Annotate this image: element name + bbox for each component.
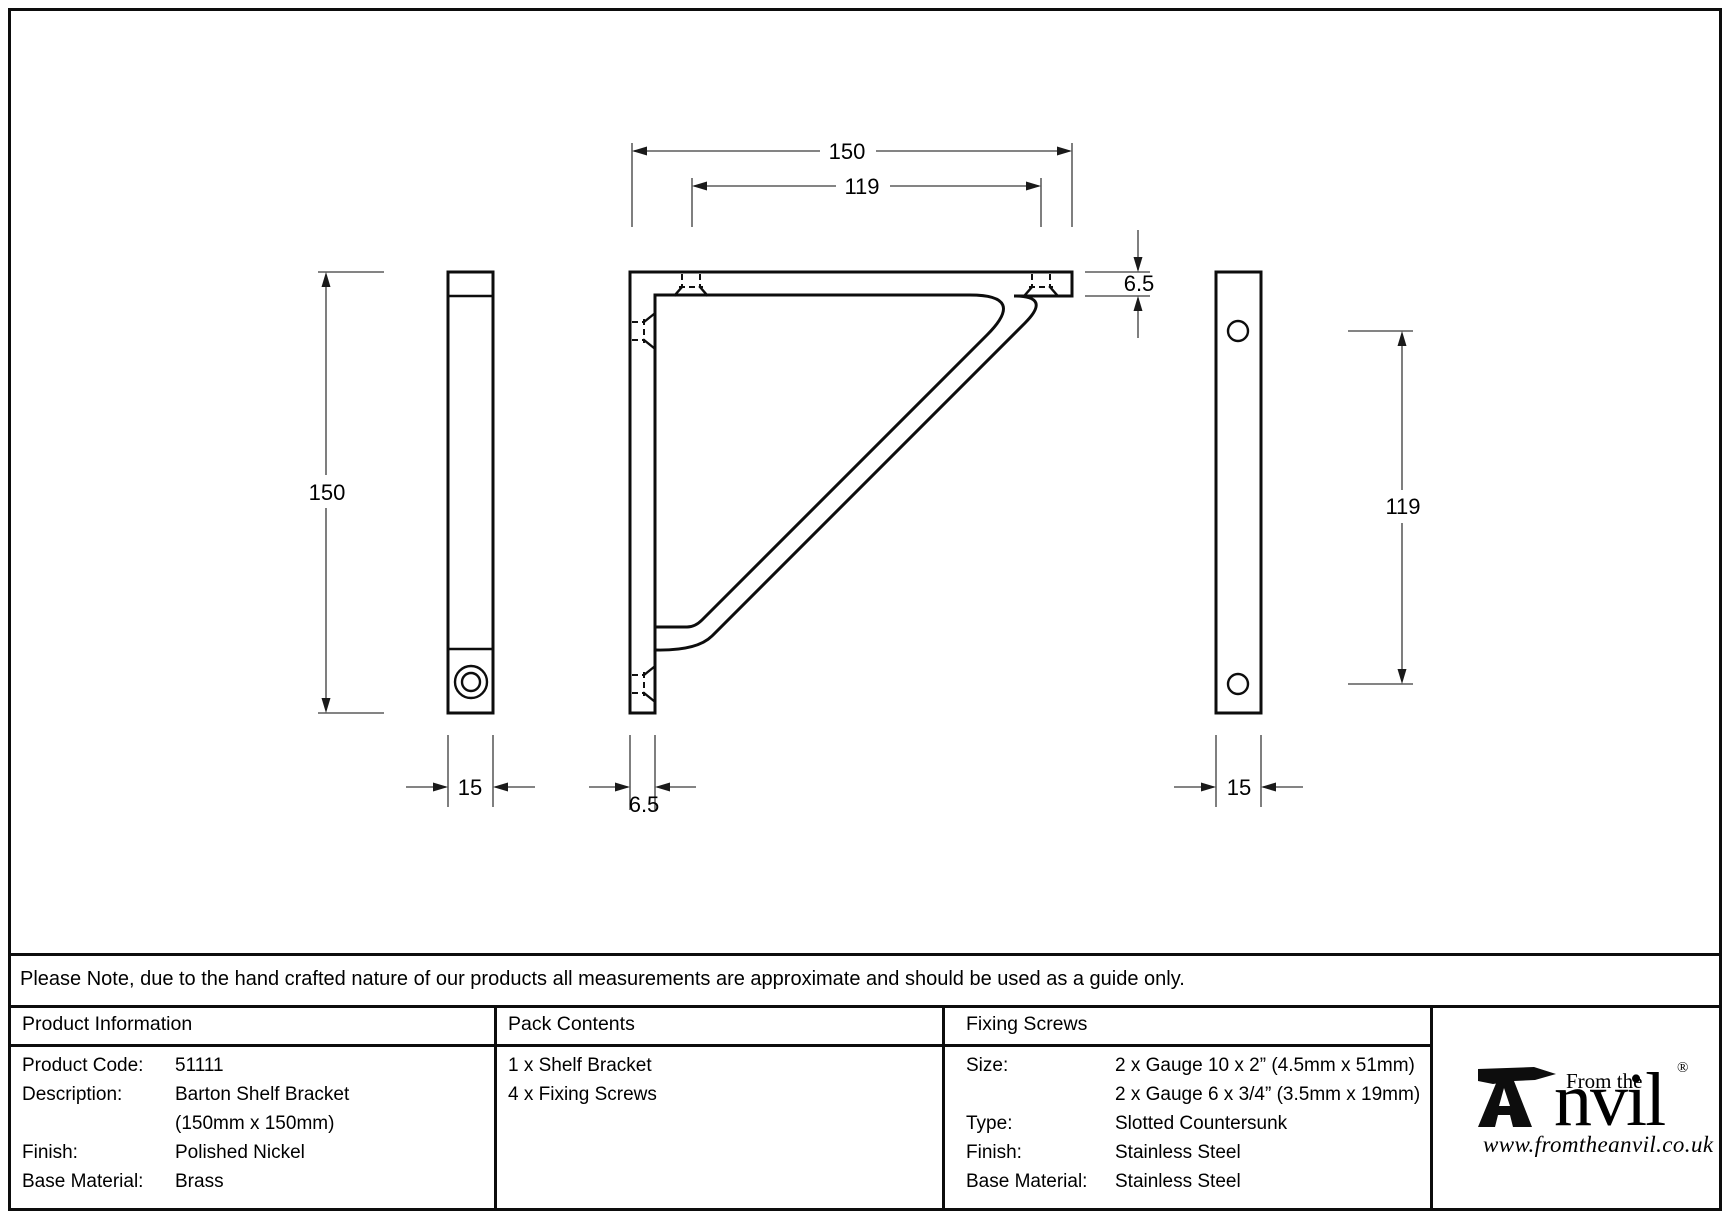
dim-right-width-label: 15 (1227, 775, 1251, 800)
row-label: Type: (966, 1109, 1115, 1138)
spec-sheet-page: 150 15 (0, 0, 1730, 1219)
countersunk-hole-inner (462, 673, 480, 691)
dim-front-hole-spacing: 119 (692, 174, 1041, 227)
product-information-header: Product Information (22, 1013, 192, 1036)
dim-front-arm-thickness: 6.5 (589, 735, 696, 817)
anvil-icon (1478, 1065, 1556, 1129)
dim-left-height: 150 (309, 272, 384, 713)
front-view: 150 119 6.5 (589, 139, 1154, 817)
dim-right-hole-spacing: 119 (1348, 331, 1421, 684)
list-item: 4 x Fixing Screws (508, 1080, 928, 1109)
table-row: Description: Barton Shelf Bracket (22, 1080, 482, 1109)
table-row: (150mm x 150mm) (22, 1109, 482, 1138)
left-side-view: 150 15 (309, 272, 535, 807)
fixing-screws-header: Fixing Screws (966, 1013, 1087, 1036)
row-label: Finish: (22, 1138, 175, 1167)
row-label: Base Material: (966, 1167, 1115, 1196)
left-side-view-outline (448, 272, 493, 713)
dim-front-thickness: 6.5 (1085, 230, 1154, 338)
row-value: Slotted Countersunk (1115, 1109, 1287, 1138)
row-label: Finish: (966, 1138, 1115, 1167)
front-hole-side-upper (632, 314, 654, 348)
row-value: 2 x Gauge 10 x 2” (4.5mm x 51mm) (1115, 1051, 1415, 1080)
divider-col-1 (494, 1005, 497, 1211)
dim-left-width: 15 (406, 735, 535, 807)
row-label: Description: (22, 1080, 175, 1109)
row-value: 51111 (175, 1051, 224, 1080)
table-row: Base Material: Brass (22, 1167, 482, 1196)
row-value: Polished Nickel (175, 1138, 305, 1167)
row-value: Brass (175, 1167, 224, 1196)
divider-col-2 (942, 1005, 945, 1211)
right-side-view: 119 15 (1174, 272, 1421, 807)
screw-hole-top (1228, 321, 1248, 341)
dim-left-width-label: 15 (458, 775, 482, 800)
dim-right-hole-spacing-label: 119 (1385, 494, 1420, 519)
row-value: (150mm x 150mm) (175, 1109, 334, 1138)
measurement-note: Please Note, due to the hand crafted nat… (20, 953, 1710, 1005)
logo-url: www.fromtheanvil.co.uk (1483, 1132, 1713, 1158)
row-value: Stainless Steel (1115, 1138, 1241, 1167)
dim-front-thickness-label: 6.5 (1124, 271, 1155, 296)
dim-front-arm-thickness-label: 6.5 (629, 792, 660, 817)
table-row: Product Code: 51111 (22, 1051, 482, 1080)
table-row: Finish: Polished Nickel (22, 1138, 482, 1167)
dim-right-width: 15 (1174, 735, 1303, 807)
list-item: 1 x Shelf Bracket (508, 1051, 928, 1080)
right-side-view-outline (1216, 272, 1261, 713)
front-hole-side-lower (632, 667, 654, 701)
dim-left-height-label: 150 (309, 480, 346, 505)
table-row: Base Material: Stainless Steel (966, 1167, 1426, 1196)
logo-wordmark: nvil (1554, 1062, 1664, 1138)
countersunk-hole-outer (455, 666, 487, 698)
table-row: Finish: Stainless Steel (966, 1138, 1426, 1167)
header-underline (8, 1044, 1430, 1047)
registered-mark-icon: ® (1677, 1060, 1688, 1077)
product-information-cell: Product Code: 51111 Description: Barton … (22, 1051, 482, 1196)
table-row: Type: Slotted Countersunk (966, 1109, 1426, 1138)
row-label: Product Code: (22, 1051, 175, 1080)
fixing-screws-cell: Size: 2 x Gauge 10 x 2” (4.5mm x 51mm) 2… (966, 1051, 1426, 1196)
pack-contents-cell: 1 x Shelf Bracket 4 x Fixing Screws (508, 1051, 928, 1109)
dim-front-hole-spacing-label: 119 (844, 174, 879, 199)
row-value: 2 x Gauge 6 x 3/4” (3.5mm x 19mm) (1115, 1080, 1420, 1109)
row-label (22, 1109, 175, 1138)
front-view-outer-outline (630, 272, 1072, 650)
dim-front-width-label: 150 (829, 139, 866, 164)
front-hole-top-right (1025, 274, 1057, 295)
row-label: Base Material: (22, 1167, 175, 1196)
front-hole-top-left (675, 274, 707, 295)
row-value: Barton Shelf Bracket (175, 1080, 349, 1109)
anvil-logo: From the nvil ® www.fromtheanvil.co.uk (1430, 1005, 1722, 1211)
table-row: Size: 2 x Gauge 10 x 2” (4.5mm x 51mm) (966, 1051, 1426, 1080)
row-label: Size: (966, 1051, 1115, 1080)
pack-contents-header: Pack Contents (508, 1013, 635, 1036)
screw-hole-bottom (1228, 674, 1248, 694)
technical-drawing: 150 15 (0, 0, 1730, 953)
table-row: 2 x Gauge 6 x 3/4” (3.5mm x 19mm) (966, 1080, 1426, 1109)
front-view-cutout-outline (655, 295, 1003, 627)
row-value: Stainless Steel (1115, 1167, 1241, 1196)
row-label (966, 1080, 1115, 1109)
